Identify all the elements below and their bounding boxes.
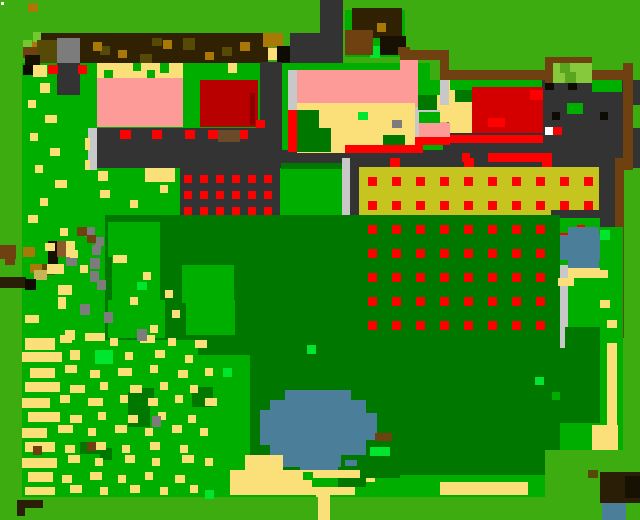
orchard-crop-dots-main-dot xyxy=(512,321,521,330)
orchard-crop-dots-main-dot xyxy=(440,225,449,234)
orchard-crop-dots-main-dot xyxy=(368,321,377,330)
orchard-crop-dots-main-dot xyxy=(536,225,545,234)
orchard-crop-dots-main-dot xyxy=(392,297,401,306)
orchard-crop-dots-main-dot xyxy=(368,273,377,282)
orchard-crop-dots-main-dot xyxy=(440,273,449,282)
orchard-crop-dots-main-dot xyxy=(512,297,521,306)
orchard-crop-dots-main-dot xyxy=(488,297,497,306)
orchard-crop-dots-main-dot xyxy=(416,225,425,234)
orchard-crop-dots-main-dot xyxy=(488,273,497,282)
orchard-crop-dots-main-dot xyxy=(512,249,521,258)
orchard-crop-dots-main-dot xyxy=(368,249,377,258)
orchard-crop-dots-main-dot xyxy=(464,321,473,330)
orchard-crop-dots-main-dot xyxy=(440,321,449,330)
orchard-crop-dots-main-dot xyxy=(536,249,545,258)
farm-map-canvas[interactable]: Pixel farm map overview xyxy=(0,0,640,520)
orchard-crop-dots-main-dot xyxy=(464,297,473,306)
orchard-crop-dots-main-dot xyxy=(536,273,545,282)
orchard-crop-dots-main-dot xyxy=(368,297,377,306)
orchard-crop-dots-main-dot xyxy=(392,225,401,234)
orchard-crop-dots-main-dot xyxy=(440,249,449,258)
orchard-crop-dots-main-dot xyxy=(536,297,545,306)
orchard-crop-dots-main-dot xyxy=(416,249,425,258)
orchard-crop-dots-main-dot xyxy=(488,249,497,258)
orchard-crop-dots-main-dot xyxy=(464,249,473,258)
orchard-crop-dots-main-dot xyxy=(440,297,449,306)
orchard-crop-dots-main-dot xyxy=(392,273,401,282)
orchard-crop-dots-main-dot xyxy=(536,321,545,330)
orchard-crop-dots-main-dot xyxy=(512,225,521,234)
orchard-crop-dots-main-dot xyxy=(488,321,497,330)
orchard-crop-dots-main[interactable] xyxy=(0,0,640,520)
orchard-crop-dots-main-dot xyxy=(464,273,473,282)
orchard-crop-dots-main-dot xyxy=(368,225,377,234)
orchard-crop-dots-main-dot xyxy=(512,273,521,282)
orchard-crop-dots-main-dot xyxy=(416,273,425,282)
orchard-crop-dots-main-dot xyxy=(392,321,401,330)
orchard-crop-dots-main-dot xyxy=(464,225,473,234)
orchard-crop-dots-main-dot xyxy=(416,321,425,330)
orchard-crop-dots-main-dot xyxy=(488,225,497,234)
orchard-crop-dots-main-dot xyxy=(392,249,401,258)
orchard-crop-dots-main-dot xyxy=(416,297,425,306)
